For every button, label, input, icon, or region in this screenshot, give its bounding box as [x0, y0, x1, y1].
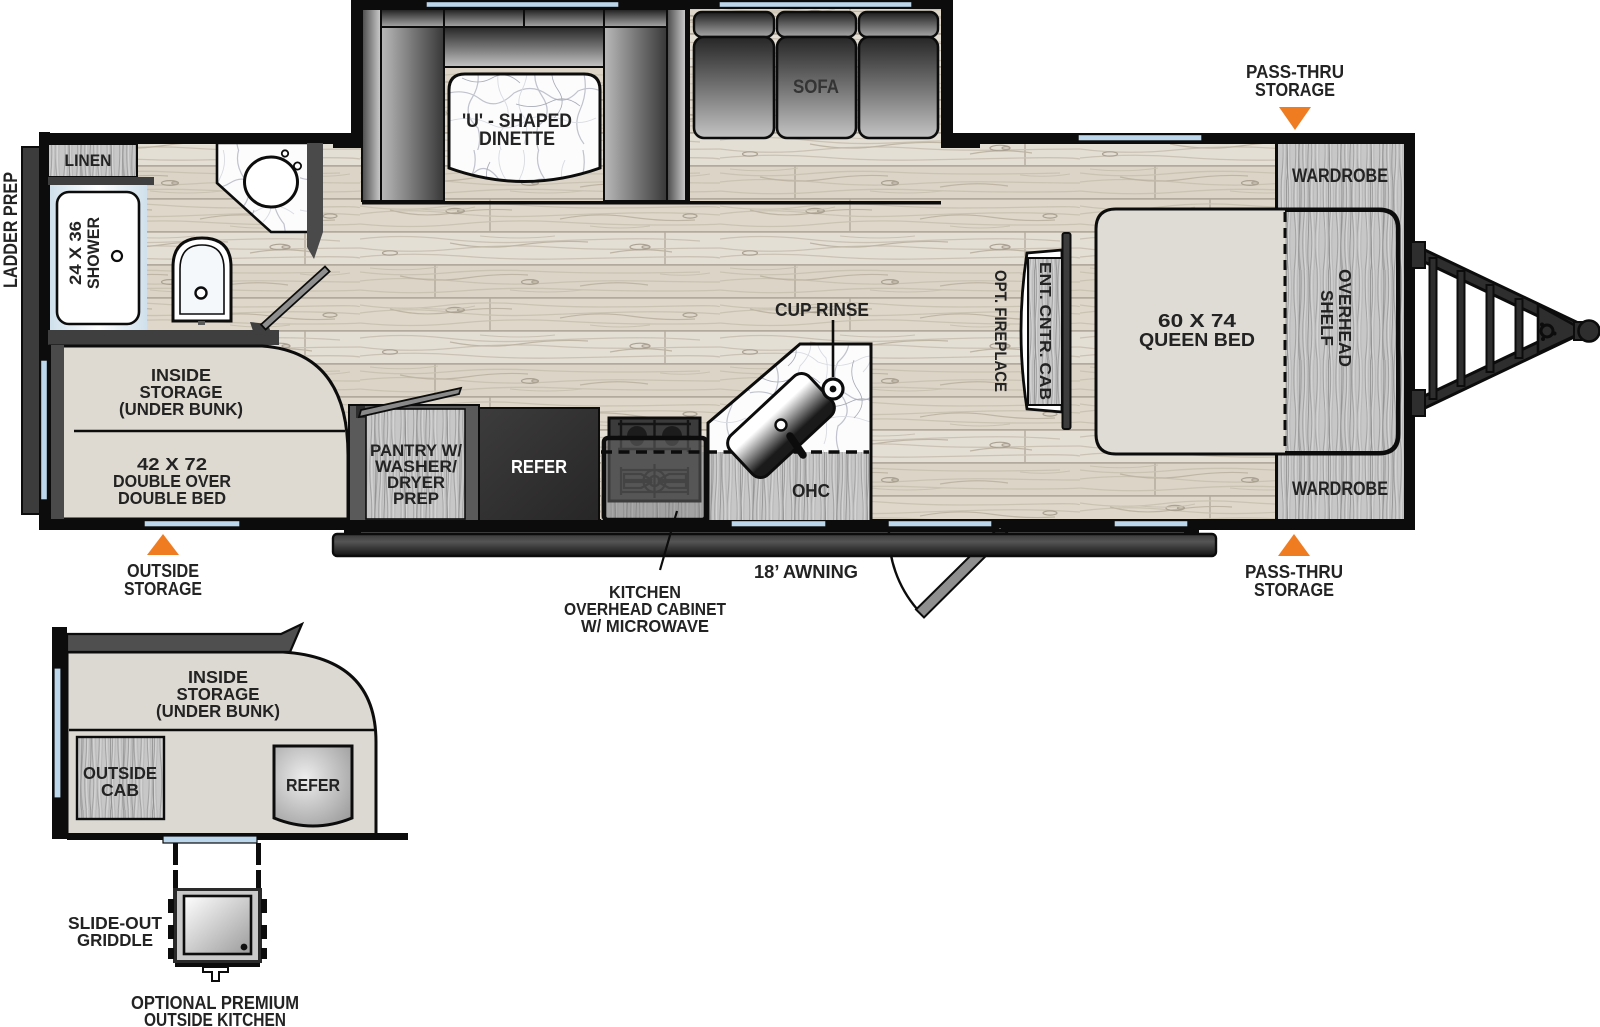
- svg-text:SHOWER: SHOWER: [84, 217, 103, 289]
- svg-text:REFER: REFER: [286, 775, 340, 795]
- svg-text:OPT. FIREPLACE: OPT. FIREPLACE: [991, 270, 1009, 392]
- svg-text:REFER: REFER: [511, 456, 567, 477]
- svg-text:18’ AWNING: 18’ AWNING: [754, 561, 858, 582]
- svg-text:STORAGE: STORAGE: [1254, 580, 1334, 600]
- svg-text:CUP RINSE: CUP RINSE: [775, 300, 869, 320]
- svg-text:W/ MICROWAVE: W/ MICROWAVE: [581, 616, 709, 636]
- svg-text:WARDROBE: WARDROBE: [1292, 166, 1388, 187]
- svg-text:QUEEN BED: QUEEN BED: [1139, 330, 1255, 350]
- svg-text:OHC: OHC: [792, 481, 830, 501]
- svg-text:PREP: PREP: [393, 490, 439, 508]
- svg-text:24 X 36: 24 X 36: [66, 221, 85, 285]
- svg-text:LADDER PREP: LADDER PREP: [1, 172, 22, 288]
- svg-text:OUTSIDE KITCHEN: OUTSIDE KITCHEN: [144, 1010, 286, 1027]
- svg-text:SOFA: SOFA: [793, 77, 839, 98]
- svg-text:LINEN: LINEN: [65, 151, 112, 170]
- svg-text:PASS-THRU: PASS-THRU: [1246, 62, 1344, 82]
- svg-text:STORAGE: STORAGE: [1255, 80, 1335, 100]
- svg-text:PASS-THRU: PASS-THRU: [1245, 562, 1343, 582]
- svg-text:STORAGE: STORAGE: [124, 579, 202, 599]
- svg-text:WARDROBE: WARDROBE: [1292, 479, 1388, 500]
- svg-text:DOUBLE BED: DOUBLE BED: [118, 488, 226, 508]
- svg-text:CAB: CAB: [101, 780, 139, 800]
- svg-text:OUTSIDE: OUTSIDE: [127, 561, 199, 581]
- svg-text:ENT. CNTR. CAB: ENT. CNTR. CAB: [1036, 262, 1053, 400]
- svg-text:DINETTE: DINETTE: [479, 129, 555, 150]
- svg-text:GRIDDLE: GRIDDLE: [77, 930, 153, 950]
- svg-text:60 X 74: 60 X 74: [1158, 311, 1236, 331]
- svg-text:(UNDER BUNK): (UNDER BUNK): [119, 399, 243, 419]
- svg-text:OVERHEAD: OVERHEAD: [1335, 269, 1355, 367]
- svg-text:SHELF: SHELF: [1317, 290, 1337, 346]
- svg-text:(UNDER BUNK): (UNDER BUNK): [156, 701, 280, 721]
